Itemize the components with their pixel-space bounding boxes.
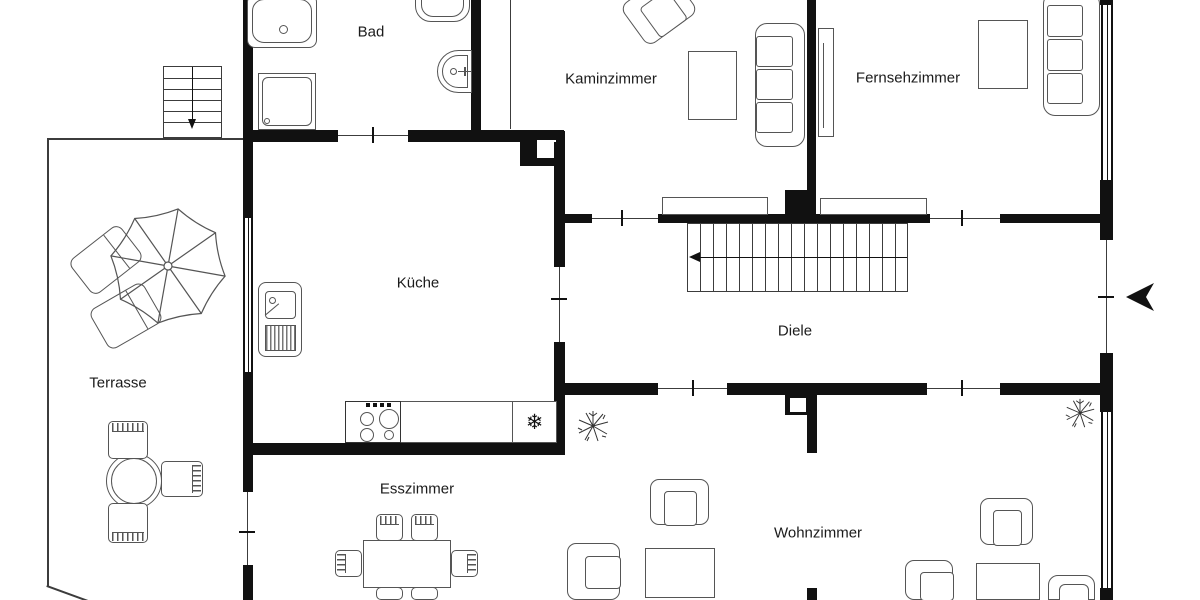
room-label-wohnzimmer: Wohnzimmer <box>774 525 862 542</box>
dining-chair <box>451 550 478 577</box>
door-tick-terrace <box>239 531 255 533</box>
terrace-boundary-left <box>47 138 49 587</box>
burner <box>379 409 399 429</box>
wall-diele-bottom-a <box>554 383 658 395</box>
dining-chair <box>411 514 438 541</box>
stove-control <box>373 403 377 407</box>
bathtub <box>247 0 317 48</box>
coffee-table-wohnzimmer <box>976 563 1040 600</box>
floorplan: ❄ <box>0 0 1200 600</box>
freezer: ❄ <box>512 401 557 443</box>
wall-bad-right <box>471 0 481 142</box>
bathtub-inner <box>252 0 312 43</box>
armchair-wohnzimmer <box>980 498 1033 545</box>
tv-screen-line <box>823 43 824 128</box>
window-midline <box>248 218 249 372</box>
sofa-cushion <box>756 69 793 100</box>
room-label-bad: Bad <box>358 24 385 41</box>
door-tick-diele-bottom-right <box>961 380 963 396</box>
room-label-esszimmer: Esszimmer <box>380 481 454 498</box>
door-tick-diele-top-left <box>621 210 623 226</box>
terrace-chair <box>108 421 148 459</box>
armchair-seat <box>1059 584 1089 600</box>
room-label-kueche: Küche <box>397 275 440 292</box>
terrace-chair <box>108 503 148 543</box>
stove-control <box>366 403 370 407</box>
sofa-fernsehzimmer <box>1043 0 1100 116</box>
kitchen-drainboard <box>265 325 296 351</box>
room-label-diele: Diele <box>778 323 812 340</box>
wall-bottom-stub <box>807 588 817 600</box>
fireplace-line <box>510 0 511 129</box>
sofa-cushion <box>1047 5 1083 37</box>
sofa-cushion <box>1047 73 1083 104</box>
washbasin-drain <box>450 68 457 75</box>
stove-control <box>380 403 384 407</box>
wall-kitchen-right-top <box>554 142 565 267</box>
wall-bad-bottom-left <box>250 130 338 142</box>
entry-arrow-icon <box>1124 281 1156 315</box>
wall-kitchen-bottom <box>243 443 565 455</box>
armchair-wohnzimmer <box>567 543 620 600</box>
dining-chair <box>335 550 362 577</box>
exterior-stairs <box>163 66 222 138</box>
washbasin <box>437 50 472 93</box>
parasol-icon <box>106 204 230 328</box>
sofa-kaminzimmer <box>755 23 805 147</box>
sofa-cushion <box>756 102 793 133</box>
wall-junction-block <box>785 190 809 223</box>
burner <box>384 430 394 440</box>
wall-diele-top-d <box>1000 214 1113 223</box>
table-fernsehzimmer <box>978 20 1028 89</box>
door-tick-diele-top-right <box>961 210 963 226</box>
stove <box>345 401 401 443</box>
wall-left-bottom <box>243 565 253 600</box>
toilet-inner <box>421 0 464 17</box>
door-line-diele-top-left <box>592 218 658 219</box>
dining-chair <box>376 514 403 541</box>
terrace-boundary-diagonal <box>46 585 90 600</box>
armchair-seat <box>993 510 1022 546</box>
chair-back <box>415 516 434 525</box>
sideboard-fernsehzimmer <box>820 198 927 215</box>
stove-control <box>387 403 391 407</box>
door-tick-entry <box>1098 296 1114 298</box>
dining-chair <box>376 587 403 600</box>
stair-arrow-left-icon <box>689 252 700 262</box>
freezer-icon: ❄ <box>526 410 544 435</box>
window-right-fernsehzimmer <box>1101 5 1113 180</box>
tv-lowboard <box>818 28 834 137</box>
window-midline <box>1107 5 1108 180</box>
terrace-table-inner <box>111 458 157 504</box>
armchair-wohnzimmer <box>905 560 953 600</box>
chimney-wohnzimmer-notch <box>790 398 806 412</box>
burner <box>360 412 374 426</box>
armchair-wohnzimmer <box>650 479 709 525</box>
door-line-kitchen-diele <box>559 267 560 342</box>
wall-diele-top-a <box>554 214 592 223</box>
plant-icon <box>575 408 611 444</box>
door-tick-bad <box>372 127 374 143</box>
wall-wohnzimmer-stub <box>807 415 817 453</box>
chair-back <box>192 465 201 493</box>
wall-left-mid <box>243 372 253 492</box>
bathtub-drain <box>279 25 288 34</box>
shower <box>258 73 316 130</box>
stair-arrow-down-icon <box>188 119 196 129</box>
wall-diele-bottom-c <box>1000 383 1113 395</box>
armchair-seat <box>585 556 621 589</box>
door-line-diele-bottom-right <box>927 388 1000 389</box>
window-right-wohnzimmer <box>1101 412 1113 588</box>
plant-icon <box>1063 396 1097 430</box>
window-midline <box>1107 412 1108 588</box>
chair-back <box>467 554 476 573</box>
chair-back <box>337 554 346 573</box>
armchair-wohnzimmer <box>1048 575 1095 600</box>
chair-back <box>112 532 144 541</box>
coffee-table-kaminzimmer <box>688 51 737 120</box>
wall-right-cap-bottom <box>1100 588 1113 600</box>
door-line-terrace <box>247 492 248 565</box>
sofa-cushion <box>756 36 793 67</box>
sideboard-kaminzimmer <box>662 197 768 215</box>
door-tick-kitchen-diele <box>551 298 567 300</box>
kitchen-sink-drain <box>269 297 276 304</box>
door-tick-diele-bottom-left <box>692 380 694 396</box>
chair-back <box>112 423 144 432</box>
toilet <box>415 0 470 22</box>
kitchen-sink-unit <box>258 282 302 357</box>
wall-right-seg2 <box>1100 353 1113 412</box>
chair-back <box>380 516 399 525</box>
door-line-diele-top-right <box>930 218 1000 219</box>
terrace-boundary-top <box>47 138 243 140</box>
burner <box>360 428 374 442</box>
kitchen-sink-basin <box>265 291 296 319</box>
room-label-terrasse: Terrasse <box>89 375 147 392</box>
armchair-seat <box>920 572 954 600</box>
armchair-seat <box>639 0 688 39</box>
wall-diele-top-c <box>816 214 930 223</box>
sofa-cushion <box>1047 39 1083 71</box>
stair-centerline <box>192 67 193 119</box>
armchair-kaminzimmer <box>619 0 699 47</box>
dining-chair <box>411 587 438 600</box>
wall-right-seg1 <box>1100 180 1113 240</box>
wall-diele-bottom-b <box>727 383 927 395</box>
room-label-fernsehzimmer: Fernsehzimmer <box>856 70 960 87</box>
window-left-kitchen <box>243 218 253 372</box>
stair-centerline <box>698 257 907 258</box>
shower-drain <box>264 118 270 124</box>
room-label-kaminzimmer: Kaminzimmer <box>565 71 657 88</box>
washbasin-faucet-tick <box>464 67 466 76</box>
dining-table <box>363 540 451 588</box>
diele-stairs <box>687 223 908 292</box>
coffee-table-wohnzimmer <box>645 548 715 598</box>
terrace-chair <box>161 461 203 497</box>
armchair-seat <box>664 491 697 526</box>
